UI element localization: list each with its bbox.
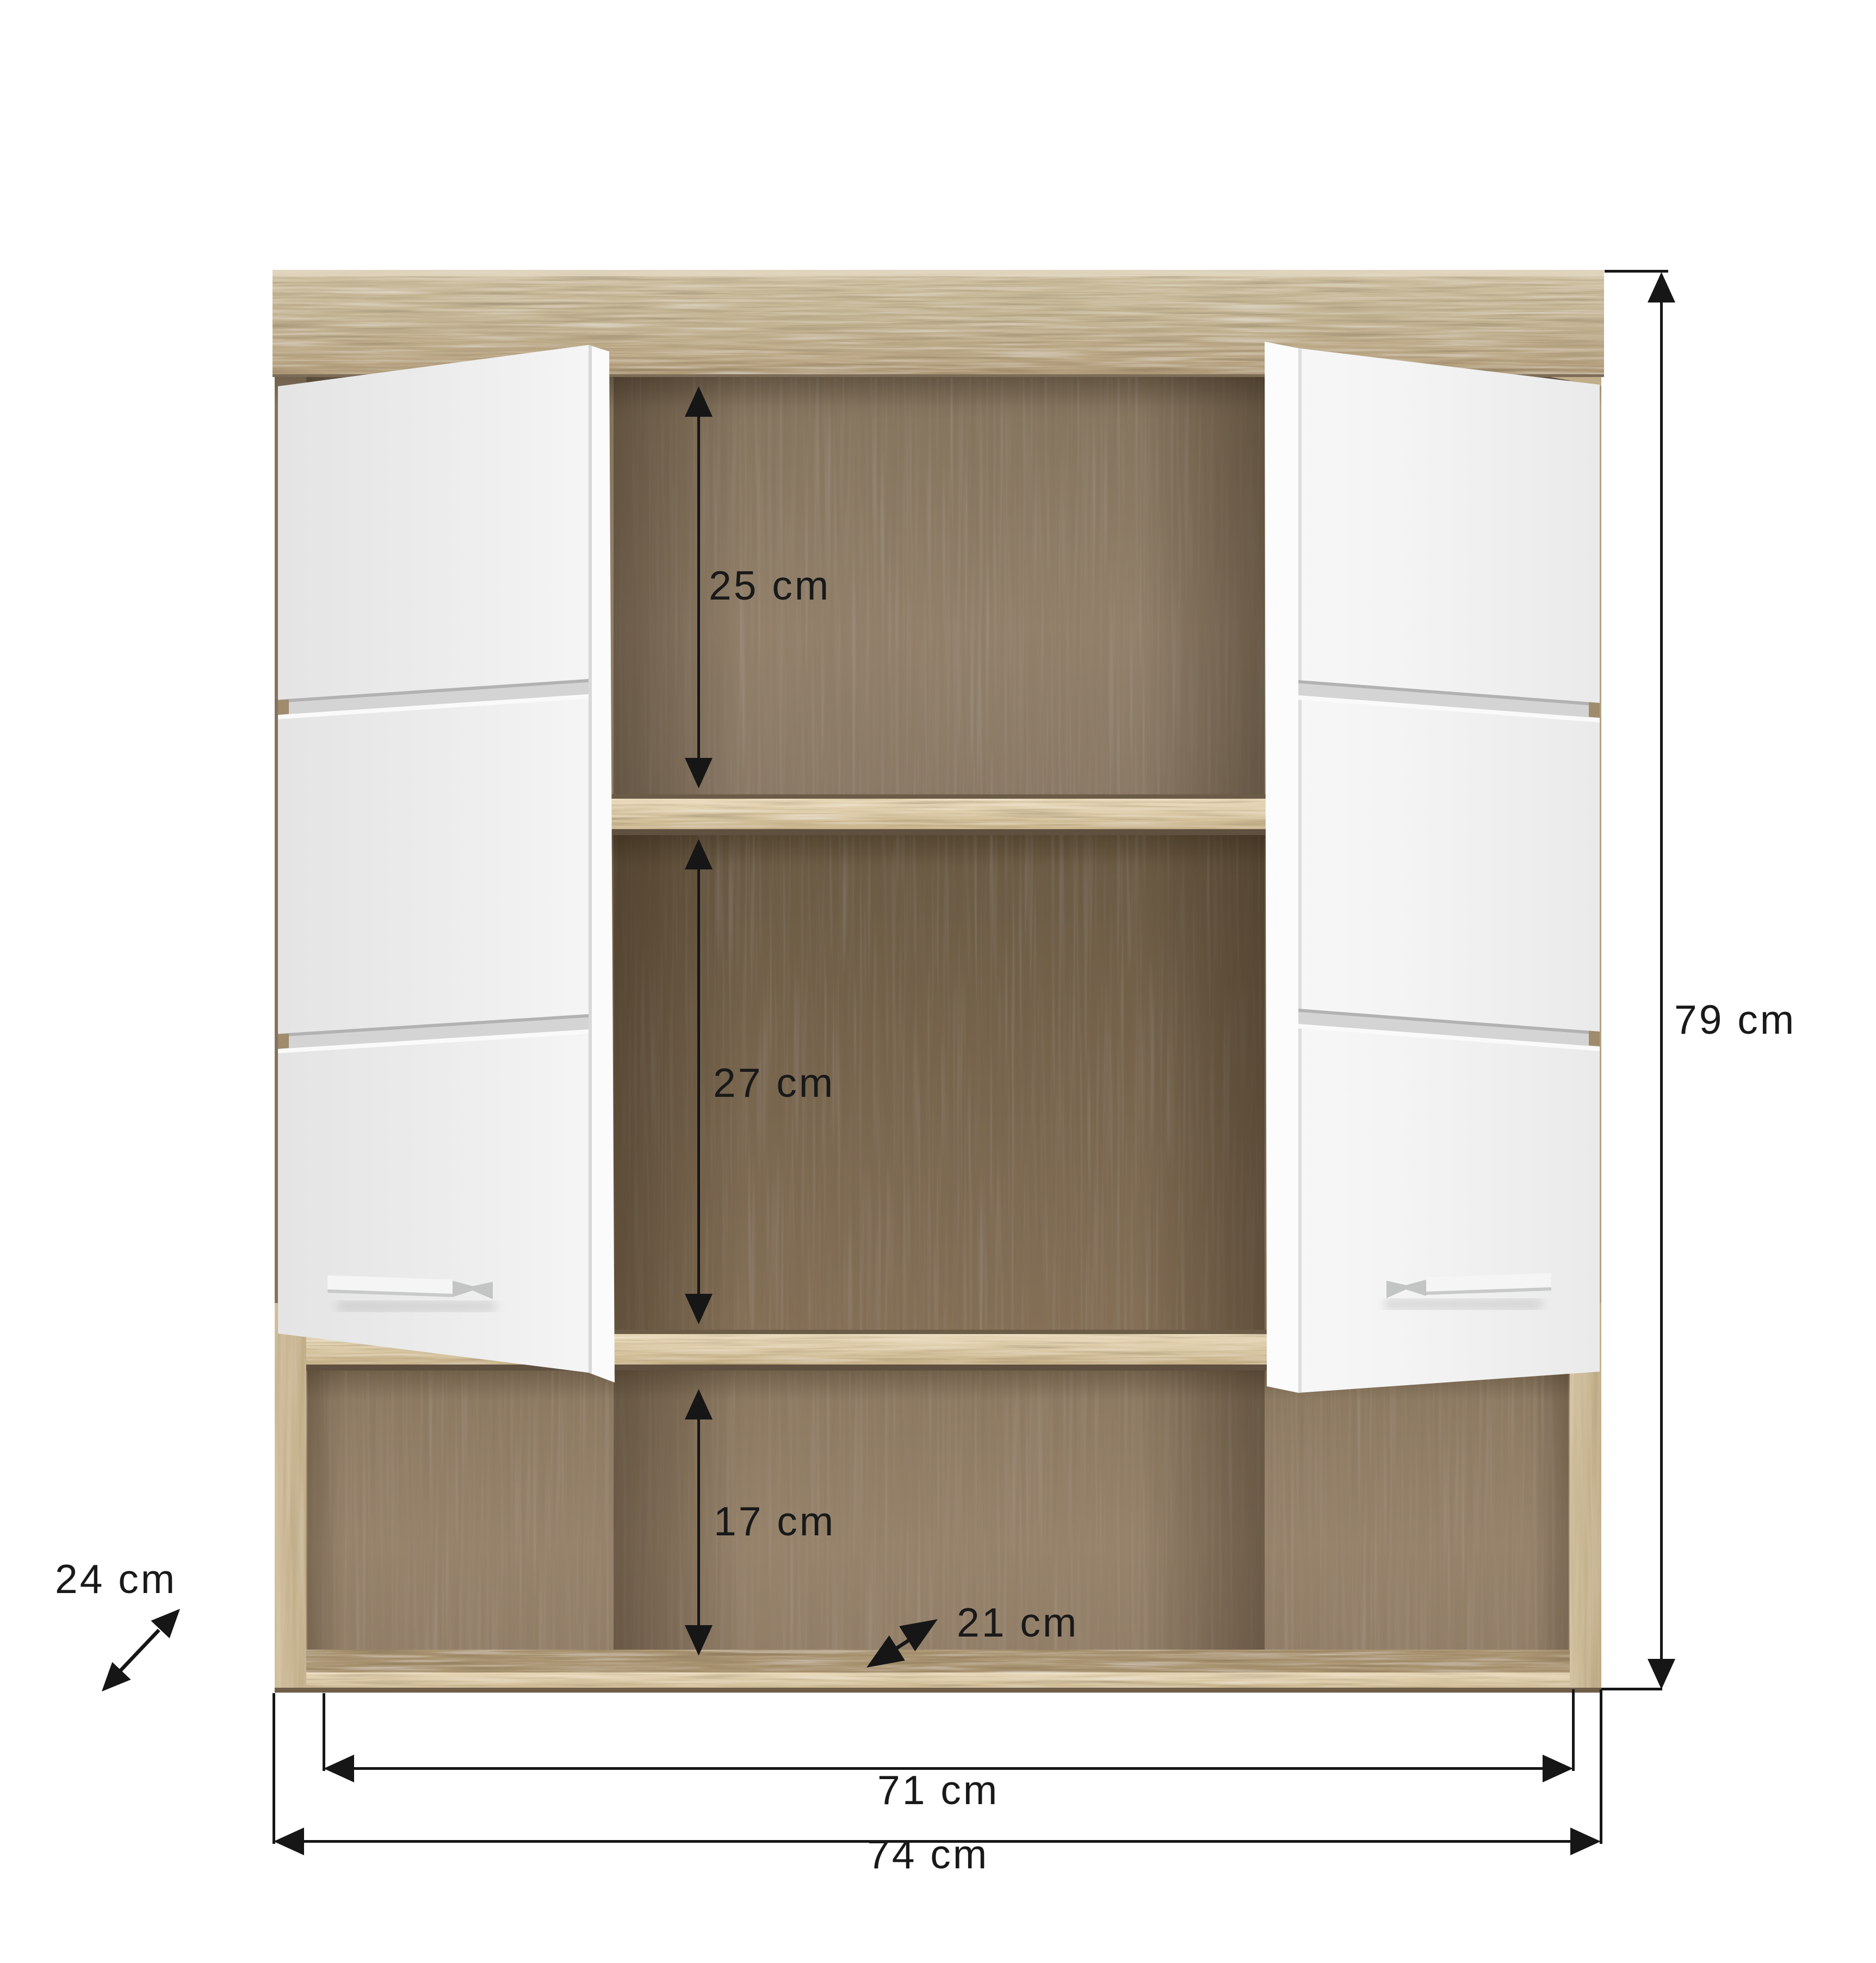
svg-text:71 cm: 71 cm: [877, 1767, 999, 1813]
svg-text:25 cm: 25 cm: [709, 563, 831, 608]
svg-text:27 cm: 27 cm: [713, 1060, 835, 1106]
svg-text:24 cm: 24 cm: [55, 1556, 177, 1602]
svg-text:79 cm: 79 cm: [1674, 997, 1796, 1042]
svg-text:74 cm: 74 cm: [867, 1831, 989, 1877]
svg-text:21 cm: 21 cm: [957, 1600, 1079, 1645]
svg-text:17 cm: 17 cm: [714, 1498, 835, 1544]
